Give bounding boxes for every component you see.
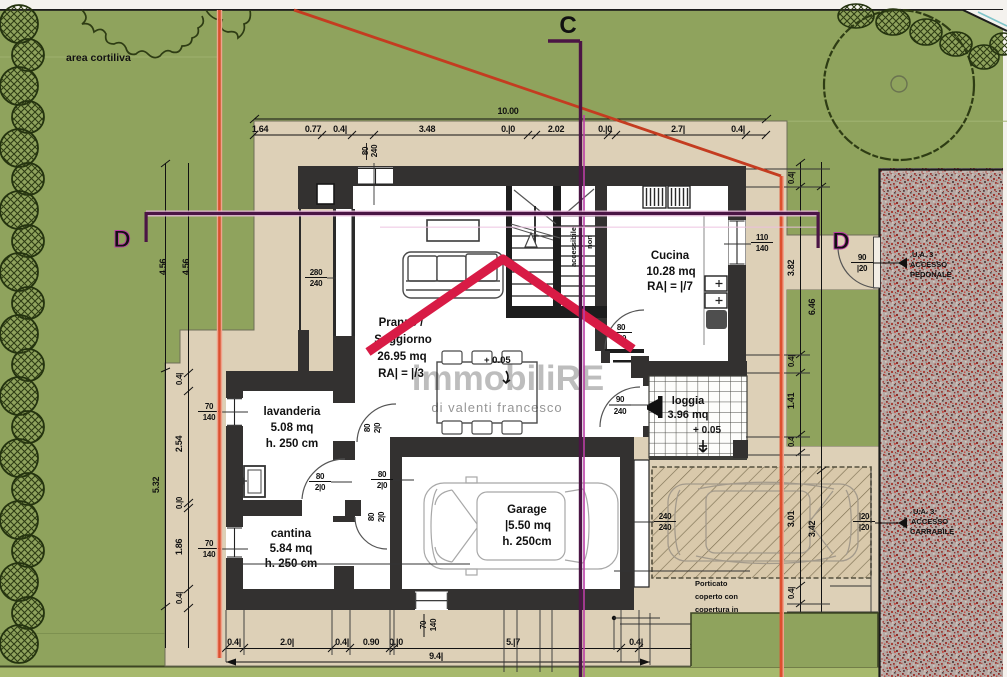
svg-text:0.4|: 0.4| (629, 637, 643, 647)
svg-text:|5.50 mq: |5.50 mq (505, 520, 551, 532)
svg-text:140: 140 (203, 413, 216, 422)
svg-text:0.4|: 0.4| (731, 124, 745, 134)
svg-text:PEDONALE: PEDONALE (910, 270, 952, 279)
svg-text:26.95 mq: 26.95 mq (377, 351, 426, 363)
svg-text:9.4|: 9.4| (429, 651, 443, 661)
svg-text:loggia: loggia (672, 395, 705, 407)
svg-text:80: 80 (617, 323, 626, 332)
svg-text:240: 240 (614, 407, 627, 416)
svg-text:3.01: 3.01 (786, 511, 796, 528)
svg-text:0.77: 0.77 (305, 124, 322, 134)
svg-text:140: 140 (203, 550, 216, 559)
svg-text:Garage: Garage (507, 504, 547, 516)
svg-text:2|0: 2|0 (373, 422, 382, 433)
svg-text:cantina: cantina (271, 528, 312, 540)
svg-text:0.|0: 0.|0 (389, 637, 403, 647)
svg-text:CARRABILE: CARRABILE (910, 527, 954, 536)
svg-text:70: 70 (205, 539, 214, 548)
svg-text:5.08 mq: 5.08 mq (271, 422, 314, 434)
svg-text:0.4|: 0.4| (333, 124, 347, 134)
svg-text:0.4|: 0.4| (175, 373, 184, 385)
svg-text:non: non (585, 235, 594, 249)
svg-text:ACCESSO: ACCESSO (911, 517, 948, 526)
svg-text:0.4: 0.4 (787, 436, 796, 447)
svg-text:240: 240 (659, 512, 672, 521)
svg-text:5.32: 5.32 (151, 477, 161, 494)
svg-text:coperto con: coperto con (695, 592, 738, 601)
svg-text:U.A. 3: U.A. 3 (913, 507, 934, 516)
svg-text:ACCESSO: ACCESSO (910, 260, 947, 269)
svg-text:Cucina: Cucina (651, 250, 690, 262)
svg-text:2|0: 2|0 (377, 511, 386, 522)
svg-text:0.|0: 0.|0 (175, 496, 184, 509)
svg-text:RA| = |/7: RA| = |/7 (647, 281, 693, 293)
svg-text:3.96 mq: 3.96 mq (668, 409, 709, 421)
svg-text:140: 140 (756, 244, 769, 253)
svg-text:240: 240 (659, 523, 672, 532)
svg-text:0.4|: 0.4| (335, 637, 349, 647)
svg-text:0.4|: 0.4| (787, 587, 796, 599)
svg-text:immobiliRE: immobiliRE (412, 359, 605, 398)
svg-text:h. 250 cm: h. 250 cm (266, 438, 318, 450)
svg-text:5.84 mq: 5.84 mq (270, 543, 313, 555)
svg-text:2.7|: 2.7| (671, 124, 685, 134)
svg-text:|20: |20 (859, 512, 870, 521)
svg-text:0.4|: 0.4| (175, 592, 184, 604)
svg-text:70: 70 (205, 402, 214, 411)
svg-text:RA| = |/3: RA| = |/3 (378, 368, 424, 380)
svg-text:10.00: 10.00 (497, 106, 518, 116)
svg-text:Porticato: Porticato (695, 579, 728, 588)
svg-text:280: 280 (310, 268, 323, 277)
svg-text:C: C (559, 12, 576, 39)
svg-text:80: 80 (378, 470, 387, 479)
svg-text:0.|0: 0.|0 (598, 124, 612, 134)
svg-text:accessibile: accessibile (569, 227, 578, 267)
svg-text:10.28 mq: 10.28 mq (646, 266, 695, 278)
svg-text:1.86: 1.86 (174, 539, 184, 556)
svg-text:0.90: 0.90 (363, 637, 380, 647)
svg-text:6.46: 6.46 (807, 299, 817, 316)
svg-text:2.0|: 2.0| (280, 637, 294, 647)
svg-text:0.4|: 0.4| (787, 355, 796, 367)
svg-text:140: 140 (429, 618, 438, 631)
svg-text:4.56: 4.56 (181, 259, 191, 276)
svg-text:D: D (832, 228, 849, 255)
svg-text:80: 80 (316, 472, 325, 481)
svg-text:|20: |20 (859, 523, 870, 532)
svg-text:80: 80 (367, 512, 376, 521)
svg-text:3.42: 3.42 (807, 521, 817, 538)
svg-text:1.64: 1.64 (252, 124, 269, 134)
svg-text:90: 90 (858, 253, 867, 262)
svg-text:4.56: 4.56 (158, 259, 168, 276)
svg-text:240: 240 (310, 279, 323, 288)
svg-text:0.|0: 0.|0 (501, 124, 515, 134)
svg-text:2|0: 2|0 (377, 481, 388, 490)
svg-text:D: D (113, 226, 130, 253)
svg-text:3.48: 3.48 (419, 124, 436, 134)
svg-text:|20: |20 (857, 264, 868, 273)
svg-text:0.4|: 0.4| (787, 172, 796, 184)
svg-text:di valenti francesco: di valenti francesco (431, 400, 562, 415)
svg-text:1.41: 1.41 (786, 393, 796, 410)
svg-text:2|0: 2|0 (315, 483, 326, 492)
svg-text:5.|7: 5.|7 (506, 637, 520, 647)
svg-text:lavanderia: lavanderia (264, 406, 321, 418)
svg-text:h. 250cm: h. 250cm (502, 536, 551, 548)
svg-text:240: 240 (370, 144, 379, 157)
svg-text:2.54: 2.54 (174, 436, 184, 453)
svg-text:U.A. 3: U.A. 3 (912, 250, 933, 259)
svg-text:2.02: 2.02 (548, 124, 565, 134)
svg-text:0.4|: 0.4| (227, 637, 241, 647)
svg-text:3.82: 3.82 (786, 260, 796, 277)
svg-text:area cortiliva: area cortiliva (66, 52, 131, 64)
svg-text:80: 80 (363, 423, 372, 432)
svg-text:80: 80 (361, 146, 370, 155)
svg-text:+ 0.05: + 0.05 (693, 425, 722, 436)
svg-text:90: 90 (616, 395, 625, 404)
svg-text:110: 110 (756, 233, 769, 242)
